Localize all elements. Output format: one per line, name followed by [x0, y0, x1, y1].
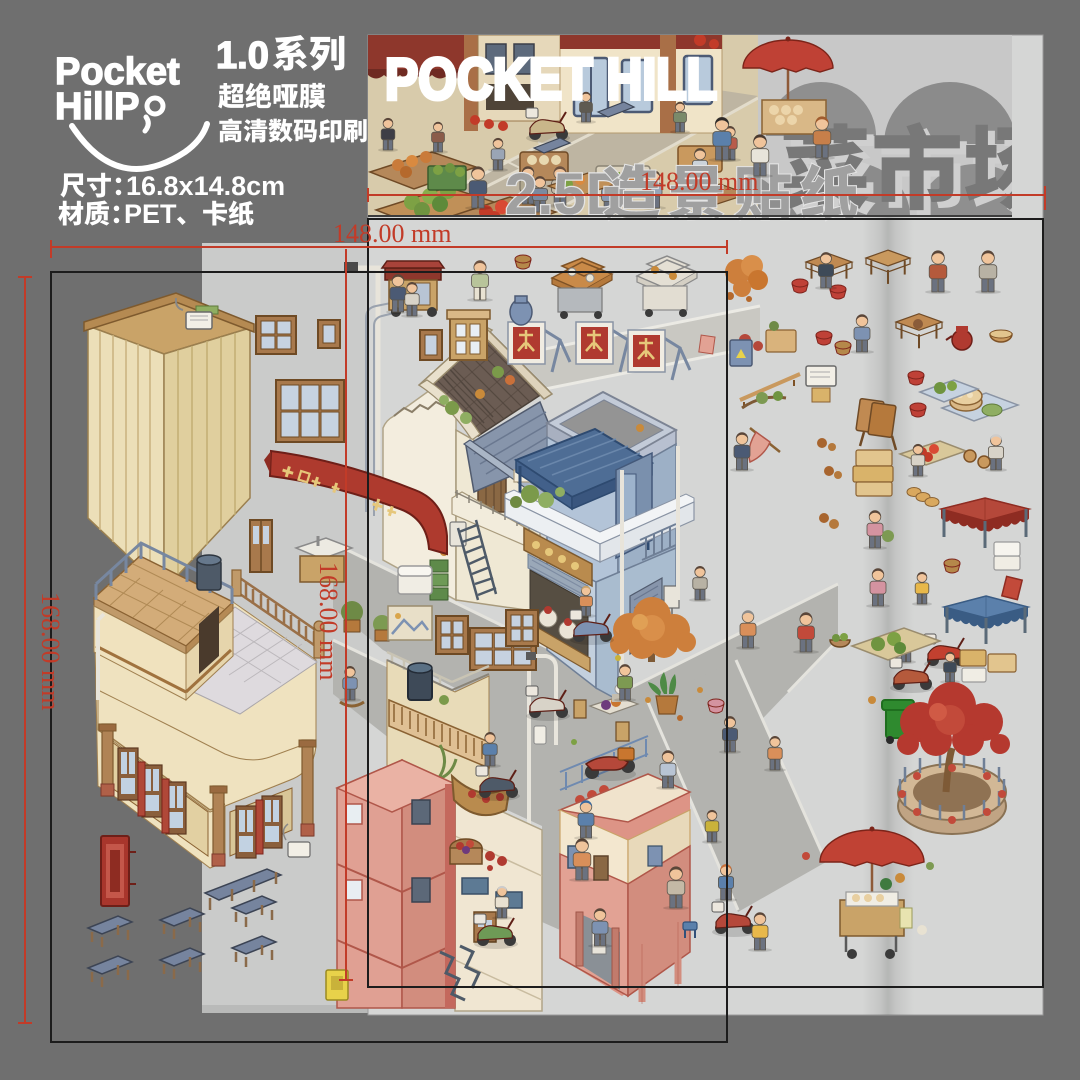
svg-text:PET: PET — [124, 199, 177, 229]
svg-text:168.00 mm: 168.00 mm — [314, 562, 343, 680]
svg-text:POCKET HILL: POCKET HILL — [385, 47, 717, 112]
svg-text:1.0: 1.0 — [216, 35, 269, 77]
svg-text:168.00 mm: 168.00 mm — [36, 592, 65, 710]
svg-text:16.8x14.8cm: 16.8x14.8cm — [126, 171, 285, 201]
svg-text:HillP: HillP — [55, 86, 139, 128]
svg-text:148.00 mm: 148.00 mm — [333, 219, 451, 248]
svg-text:148.00 mm: 148.00 mm — [640, 167, 758, 196]
